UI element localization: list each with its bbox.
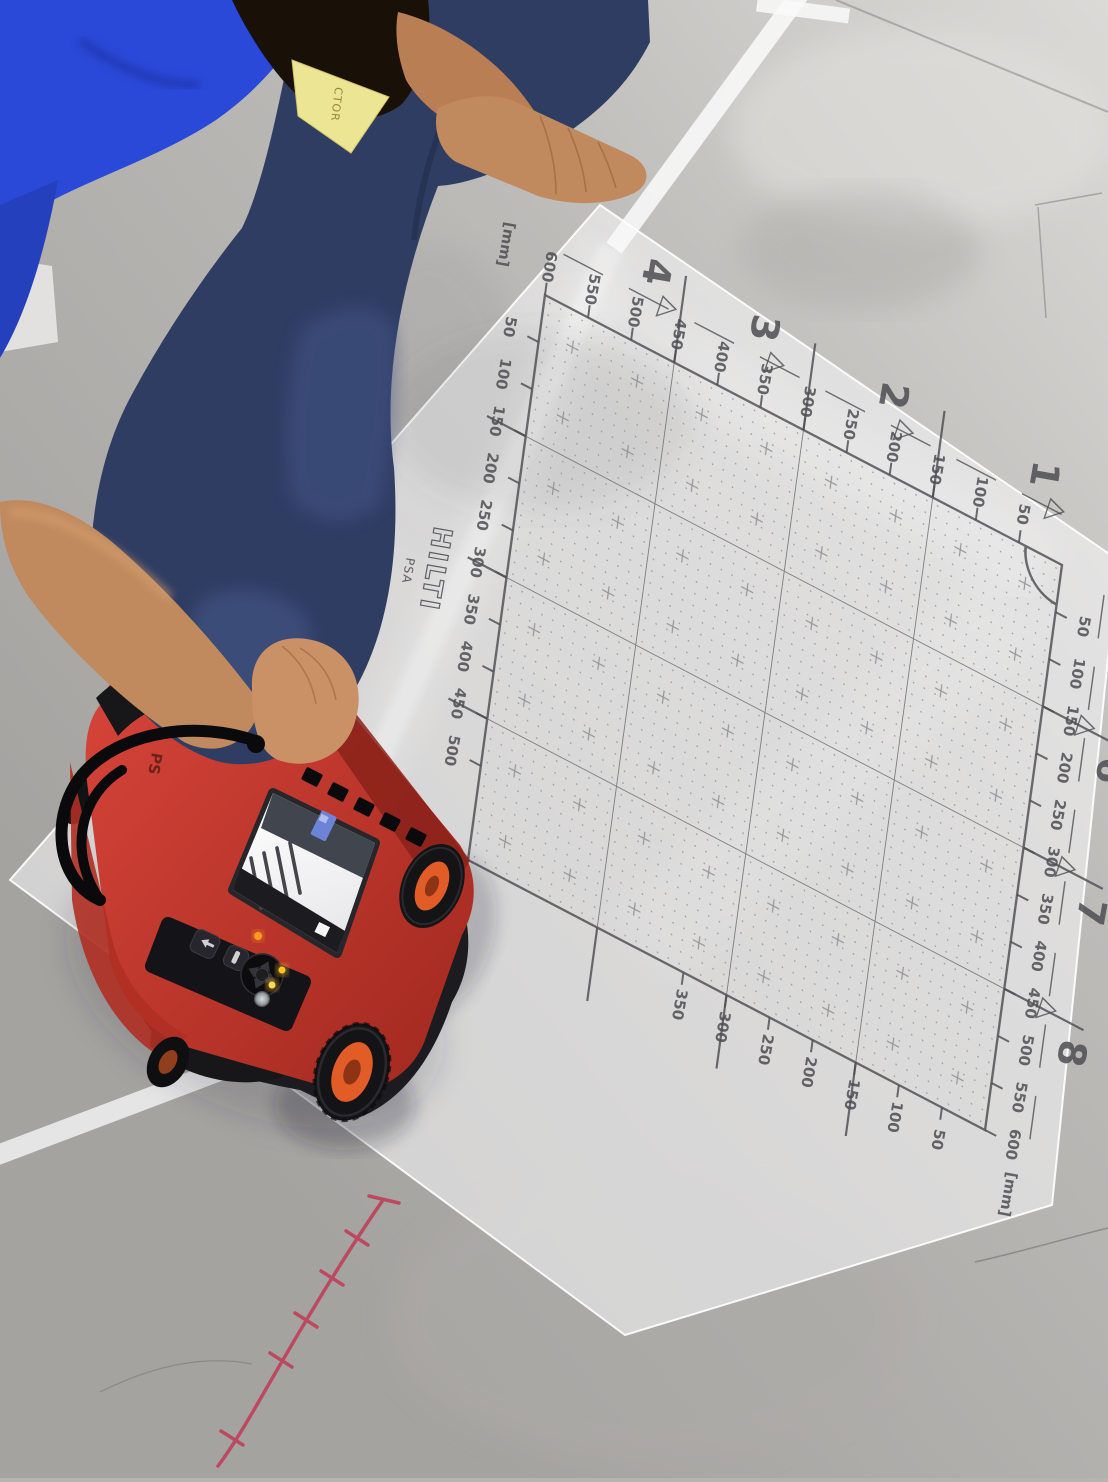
device-marking: PS — [144, 751, 166, 776]
status-led-1 — [279, 967, 286, 974]
jeans-wash-1 — [286, 308, 397, 522]
ruler-label: 50 — [499, 315, 520, 339]
ruler-label: 50 — [1073, 615, 1094, 639]
strap-clip — [247, 735, 265, 753]
ruler-label: 50 — [927, 1128, 948, 1152]
status-led-3 — [254, 932, 262, 940]
ruler-label: 50 — [1013, 502, 1034, 526]
scene-svg: 5010015020025030035040045050055060050100… — [0, 0, 1108, 1478]
photo-canvas: 5010015020025030035040045050055060050100… — [0, 0, 1108, 1478]
power-button — [255, 992, 270, 1007]
floor-damp-stain — [740, 190, 980, 310]
status-led-2 — [269, 982, 276, 989]
